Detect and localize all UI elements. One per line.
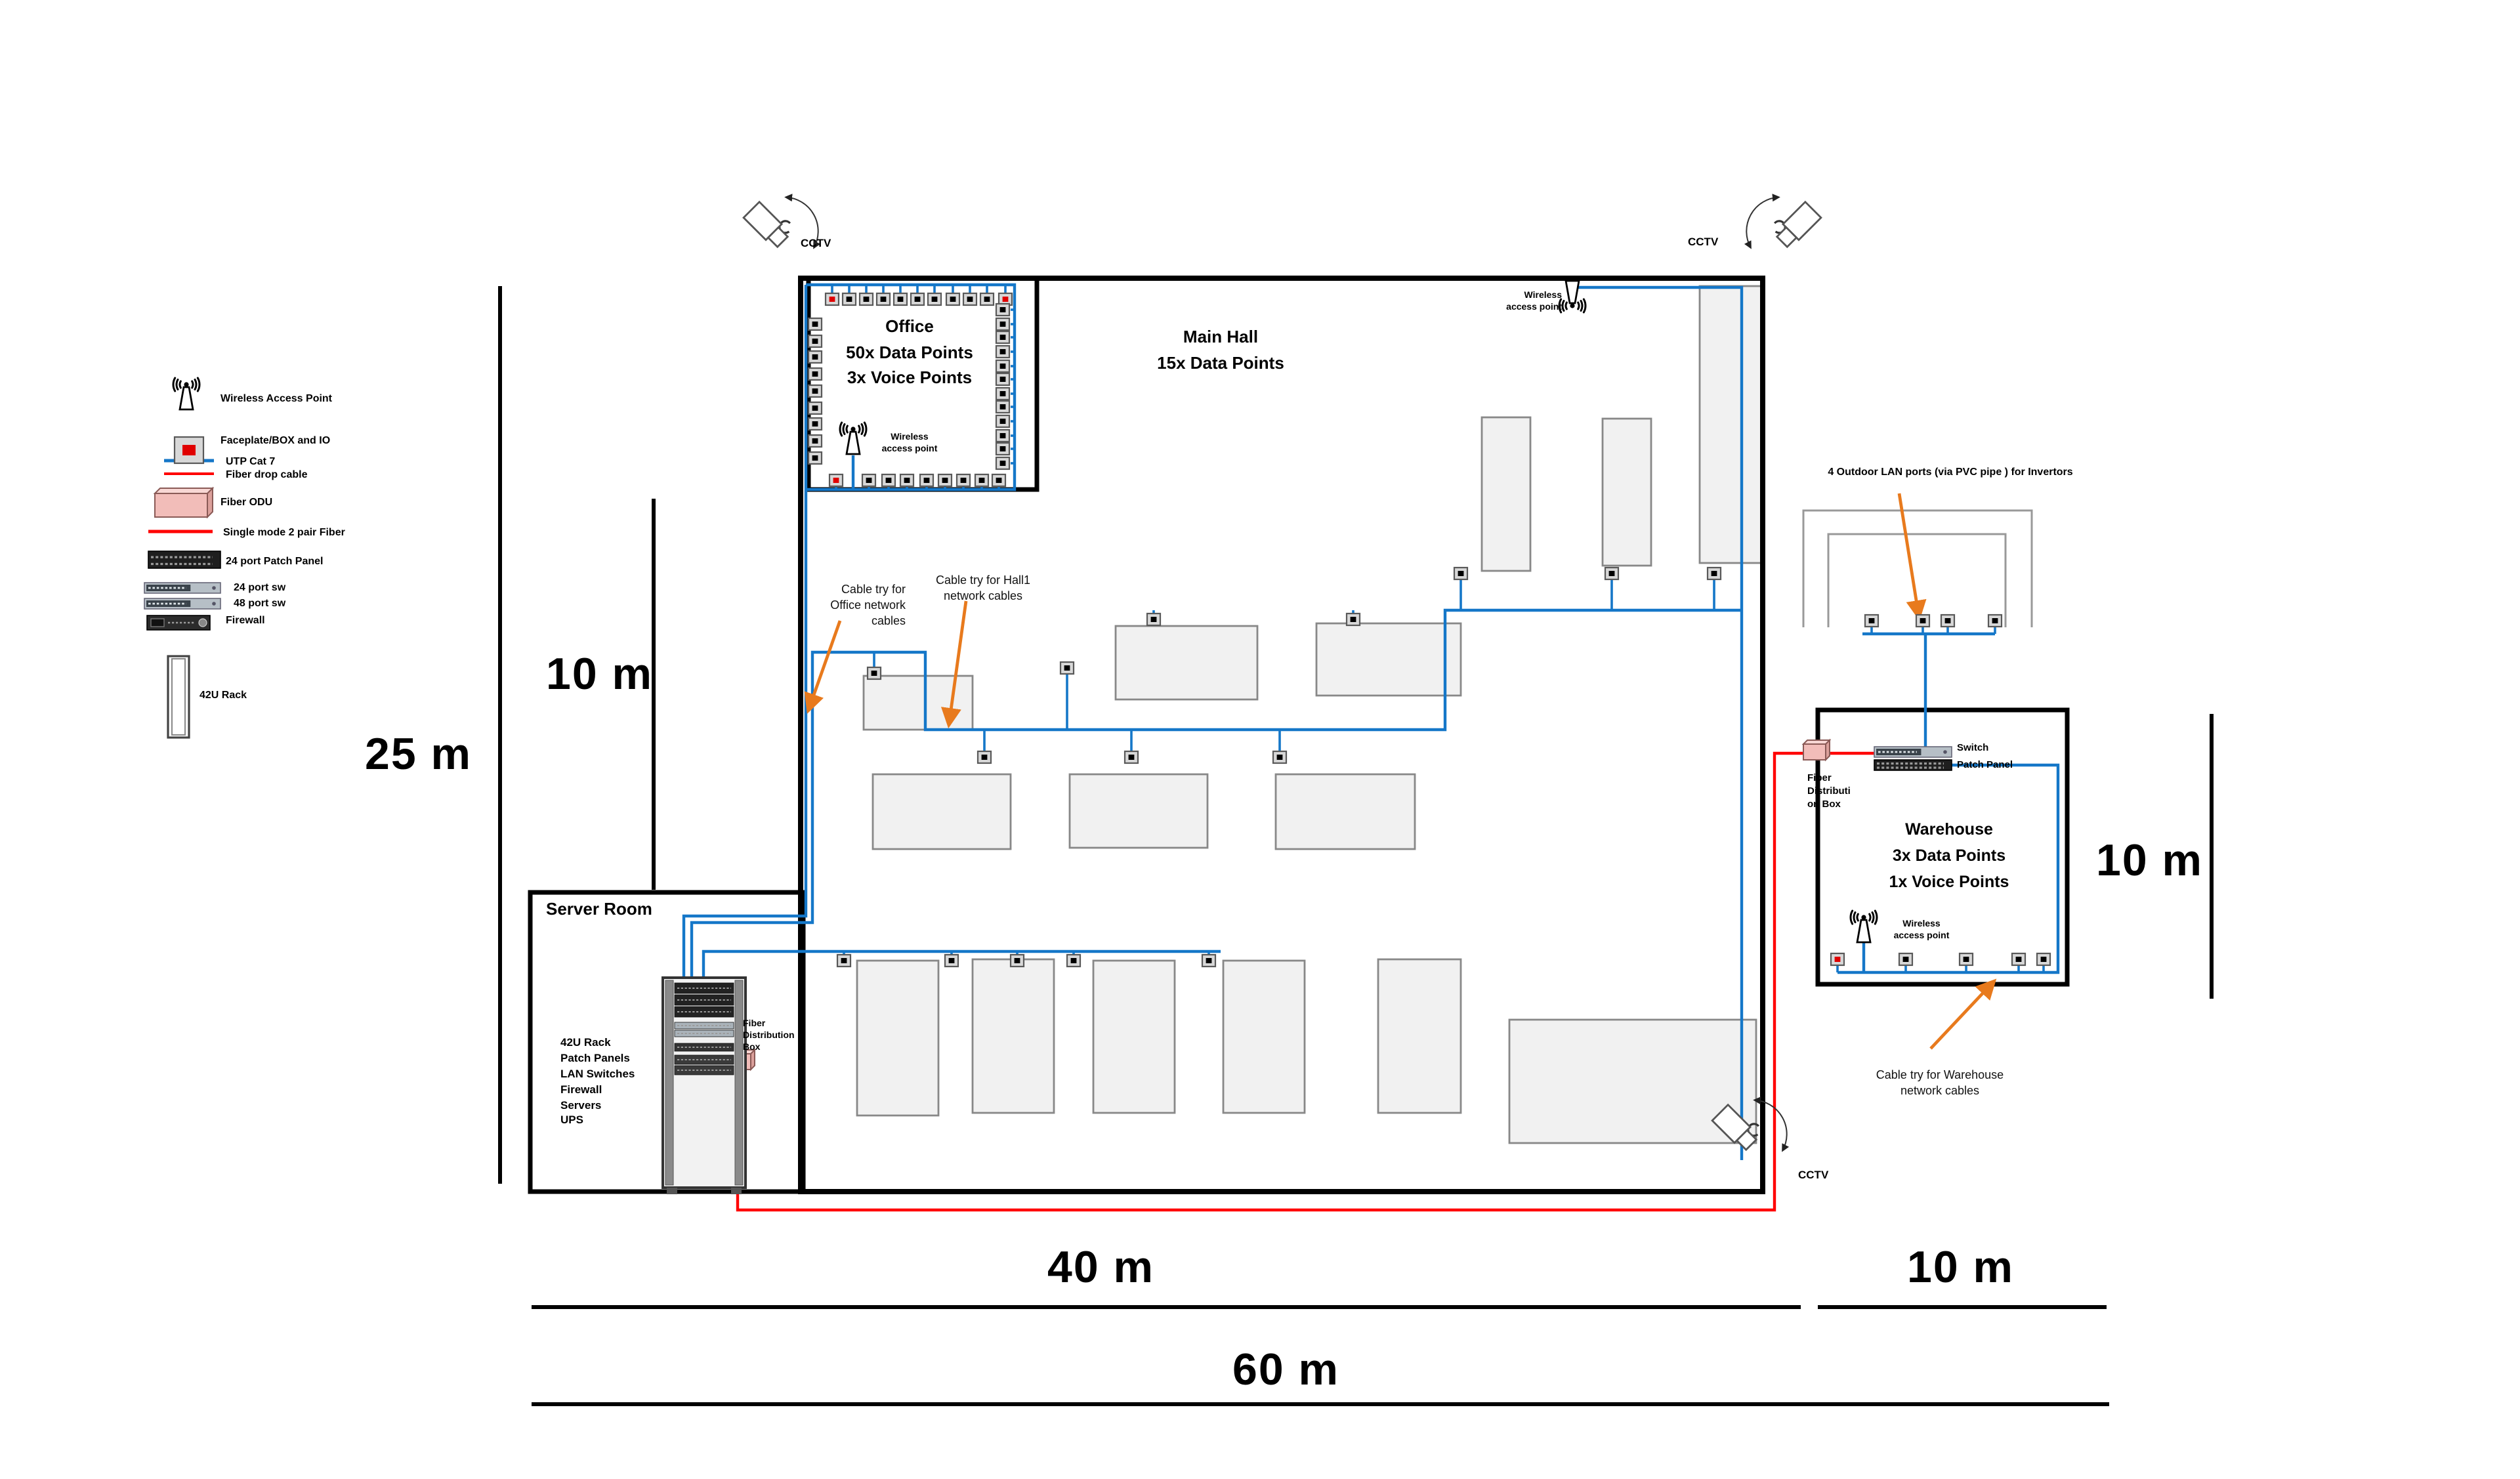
hall-table: [864, 676, 973, 730]
data-point-io: [1206, 958, 1212, 963]
data-point-io: [866, 478, 872, 483]
voice-point-io: [829, 297, 835, 302]
hall-table: [1316, 623, 1461, 696]
legend-label-fiber-drop: Fiber drop cable: [226, 469, 307, 482]
data-point-io: [898, 297, 904, 302]
voice-point-io: [182, 445, 196, 455]
warehouse-ap-label: Wireless access point: [1882, 919, 1961, 942]
data-point-io: [1000, 461, 1006, 466]
data-point-io: [812, 455, 818, 461]
data-point-io: [812, 438, 818, 444]
data-point-io: [1992, 618, 1998, 623]
data-point-io: [1071, 958, 1077, 963]
hall-table: [1093, 961, 1175, 1113]
data-point-io: [1458, 571, 1464, 576]
legend-label-firewall: Firewall: [226, 614, 265, 628]
data-point-io: [984, 297, 990, 302]
dimension-10m-bottom: 10 m: [1907, 1239, 2014, 1297]
legend-label-42u-rack: 42U Rack: [199, 689, 247, 703]
main-hall-title: Main Hall 15x Data Points: [1109, 324, 1332, 375]
fiber-odu-side: [207, 488, 213, 517]
data-point-io: [1000, 404, 1006, 409]
warehouse-title: Warehouse 3x Data Points 1x Voice Points: [1834, 816, 2065, 895]
data-point-io: [2016, 957, 2022, 962]
legend-label-wireless-access-point: Wireless Access Point: [220, 392, 332, 406]
legend-label-24-port-sw: 24 port sw: [234, 581, 285, 595]
voice-point-io: [833, 478, 839, 483]
office-cable-tray-annotation: Cable try for Office network cables: [801, 581, 906, 629]
data-point-io: [812, 421, 818, 427]
cctv-label-top-right: CCTV: [1688, 235, 1718, 249]
rack-rail-right: [735, 980, 743, 1185]
office-ap-label: Wireless access point: [869, 432, 950, 455]
data-point-io: [967, 297, 973, 302]
switch-led: [1943, 750, 1947, 754]
annotation-arrow: [1931, 982, 1994, 1049]
warehouse-fiber-distribution-box-label: Fiber Distributi on Box: [1807, 772, 1851, 810]
data-point-io: [1963, 957, 1969, 962]
legend-rack-icon: [168, 656, 189, 738]
hall-table: [1116, 626, 1257, 699]
rack-rail-left: [665, 980, 673, 1185]
data-point-io: [1000, 446, 1006, 451]
patch-panel-device: [148, 551, 220, 568]
data-point-io: [847, 297, 852, 302]
cctv-camera-icon: [744, 180, 831, 268]
dimension-10m-right: 10 m: [2096, 832, 2203, 890]
data-point-io: [932, 297, 938, 302]
legend-label-48-port-sw: 48 port sw: [234, 597, 285, 611]
faceplate-io-points: [175, 293, 2050, 967]
data-point-io: [961, 478, 967, 483]
data-point-io: [886, 478, 892, 483]
hall-table: [1070, 774, 1207, 848]
hall-table: [857, 961, 938, 1115]
data-point-io: [950, 297, 956, 302]
server-fiber-distribution-box-label: Fiber Distribution Box: [743, 1018, 795, 1054]
cctv-label-top-left: CCTV: [801, 236, 831, 251]
server-room-equipment-list: 42U Rack Patch Panels LAN Switches Firew…: [560, 1035, 635, 1129]
data-point-io: [924, 478, 930, 483]
firewall-port: [151, 619, 164, 627]
fiber-odu-box: [1803, 744, 1826, 760]
hall-tables: [857, 286, 1764, 1143]
data-point-io: [1000, 307, 1006, 312]
data-point-io: [871, 671, 877, 676]
data-point-io: [915, 297, 921, 302]
legend-label-fiber-odu: Fiber ODU: [220, 496, 272, 510]
dimension-40m: 40 m: [1047, 1239, 1154, 1297]
office-title: Office 50x Data Points 3x Voice Points: [811, 314, 1008, 390]
hall-cable-tray-annotation: Cable try for Hall1 network cables: [911, 572, 1055, 604]
voice-point-io: [1835, 957, 1841, 962]
warehouse-switch-label: Switch: [1957, 741, 1988, 755]
hall-table: [1482, 417, 1530, 571]
switch-led: [212, 586, 216, 590]
hall-table: [1700, 286, 1764, 563]
data-point-io: [1920, 618, 1926, 623]
fiber-odu-top: [155, 488, 213, 493]
data-point-io: [1609, 571, 1615, 576]
hall-table: [873, 774, 1011, 849]
wireless-access-point-icon: [1851, 911, 1877, 942]
wireless-access-point-icon: [173, 378, 199, 409]
rack-foot: [731, 1188, 742, 1194]
legend-label-utp-cat7: UTP Cat 7: [226, 455, 275, 469]
data-point-io: [1711, 571, 1717, 576]
dimension-60m: 60 m: [1232, 1341, 1339, 1399]
main-hall-ap-label: Wireless access point: [1475, 290, 1562, 314]
warehouse-cable-tray-annotation: Cable try for Warehouse network cables: [1835, 1067, 2045, 1099]
wireless-access-point-icon: [840, 423, 866, 454]
dimension-10m-left: 10 m: [546, 646, 653, 703]
server-room-title: Server Room: [546, 899, 652, 921]
annotation-arrow: [1899, 493, 1919, 617]
data-point-io: [1351, 617, 1356, 622]
data-point-io: [1064, 665, 1070, 671]
data-point-io: [1000, 391, 1006, 396]
data-point-io: [1015, 958, 1020, 963]
hall-table: [1378, 959, 1461, 1113]
cctv-label-bottom-right: CCTV: [1798, 1168, 1828, 1182]
data-point-io: [1277, 755, 1283, 760]
data-point-io: [1903, 957, 1909, 962]
fiber-odu-box: [155, 493, 207, 517]
data-point-io: [1869, 618, 1875, 623]
outdoor-lan-ports-annotation: 4 Outdoor LAN ports (via PVC pipe ) for …: [1801, 466, 2100, 480]
cctv-camera-icon: [1733, 180, 1821, 268]
data-point-io: [2041, 957, 2047, 962]
dimension-25m: 25 m: [365, 726, 472, 783]
data-point-io: [1000, 433, 1006, 438]
data-point-io: [904, 478, 910, 483]
switch-led: [212, 602, 216, 606]
data-point-io: [1945, 618, 1951, 623]
data-point-io: [864, 297, 870, 302]
firewall-fan: [199, 619, 207, 627]
wireless-access-point-icon: [1559, 281, 1585, 312]
utp-cat7-cable: [684, 491, 806, 978]
data-point-io: [841, 958, 847, 963]
rack-foot: [667, 1188, 677, 1194]
voice-point-io: [1003, 297, 1009, 302]
hall-table: [1276, 774, 1415, 849]
data-point-io: [812, 406, 818, 411]
legend-label-patch-panel: 24 port Patch Panel: [226, 555, 324, 569]
data-point-io: [1151, 617, 1157, 622]
network-floorplan-diagram: Wireless Access Point Faceplate/BOX and …: [0, 0, 2520, 1479]
hall-table: [973, 959, 1054, 1113]
data-point-io: [982, 755, 988, 760]
data-point-io: [1000, 419, 1006, 424]
legend-label-faceplate: Faceplate/BOX and IO: [220, 434, 330, 448]
data-point-io: [949, 958, 955, 963]
warehouse-patch-panel-label: Patch Panel: [1957, 759, 2013, 772]
hall-table: [1223, 961, 1305, 1113]
hall-table: [1603, 419, 1651, 566]
data-point-io: [996, 478, 1002, 483]
data-point-io: [942, 478, 948, 483]
data-point-io: [979, 478, 985, 483]
data-point-io: [881, 297, 887, 302]
legend-label-single-mode-fiber: Single mode 2 pair Fiber: [223, 526, 345, 540]
data-point-io: [1129, 755, 1135, 760]
